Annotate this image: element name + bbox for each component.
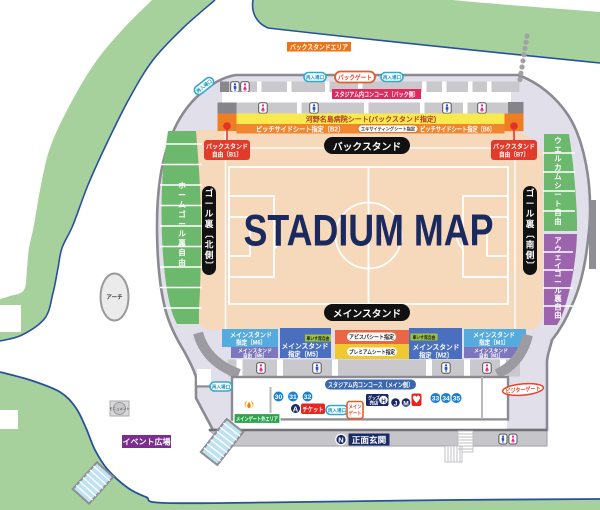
svg-text:ル: ル [526,209,535,219]
svg-text:ル: ル [554,154,562,163]
svg-text:〔: 〔 [525,230,535,239]
svg-text:32: 32 [304,394,312,401]
svg-text:指定〔M6〕: 指定〔M6〕 [236,338,266,347]
svg-text:再入場口: 再入場口 [212,383,231,390]
svg-text:M: M [403,400,409,407]
svg-text:バックゲート: バックゲート [338,73,372,82]
svg-text:自由〔B1〕: 自由〔B1〕 [212,150,242,159]
svg-text:30: 30 [275,394,283,401]
svg-text:裏: 裏 [525,218,535,229]
svg-text:自由〔M1〕: 自由〔M1〕 [479,351,503,359]
svg-text:メインスタンド: メインスタンド [333,308,401,320]
svg-text:N: N [338,436,343,445]
svg-text:再入場口: 再入場口 [328,407,347,414]
svg-text:イベント広場: イベント広場 [123,437,171,447]
svg-text:〔: 〔 [204,230,214,239]
svg-text:アビスパシート指定: アビスパシート指定 [349,333,395,341]
svg-text:チケット: チケット [303,405,324,413]
svg-text:指定〔M5〕: 指定〔M5〕 [288,350,322,359]
svg-text:裏: 裏 [177,238,186,248]
svg-text:正面玄関: 正面玄関 [352,434,387,445]
svg-text:メインスタンド: メインスタンド [413,343,460,352]
svg-text:ゴ: ゴ [526,187,535,198]
svg-text:ル: ル [178,229,186,238]
svg-text:自: 自 [554,208,561,217]
svg-text:ー: ー [554,190,561,199]
svg-text:カ: カ [554,163,561,172]
svg-text:STADIUM MAP: STADIUM MAP [244,205,494,255]
svg-text:バックスタンドエリア: バックスタンドエリア [290,43,348,52]
svg-text:33: 33 [432,395,440,402]
svg-text:ム: ム [178,200,186,209]
svg-text:ー: ー [178,191,186,200]
svg-text:H: H [381,398,386,405]
svg-text:アーチ: アーチ [106,294,123,301]
svg-text:バックスタンド: バックスタンド [493,142,535,151]
svg-text:北: 北 [205,239,214,250]
svg-text:〕: 〕 [204,261,214,270]
svg-text:車いす席自由: 車いす席自由 [307,335,330,342]
svg-text:スタジアム内コンコース〔バック側〕: スタジアム内コンコース〔バック側〕 [335,90,419,99]
svg-text:ー: ー [205,198,214,208]
svg-text:再入場口: 再入場口 [383,74,402,81]
svg-text:メイン: メイン [349,404,363,411]
svg-text:指定〔M1〕: 指定〔M1〕 [479,338,509,347]
svg-text:車いす席自由: 車いす席自由 [413,334,436,341]
svg-text:側: 側 [204,249,214,260]
svg-text:J: J [394,400,398,407]
svg-text:ム: ム [554,172,562,181]
svg-text:35: 35 [453,395,461,402]
svg-text:ル: ル [205,209,214,219]
svg-text:河野名島病院シート(バックスタンド指定): 河野名島病院シート(バックスタンド指定) [306,115,436,124]
svg-text:ゴ: ゴ [178,209,186,219]
svg-text:由: 由 [554,311,561,320]
svg-text:ゴ: ゴ [205,187,214,198]
svg-text:スタジアム内コンコース〔メイン側〕: スタジアム内コンコース〔メイン側〕 [328,380,413,389]
svg-text:側: 側 [525,249,535,260]
svg-text:ピッチサイドシート指定〔B6〕: ピッチサイドシート指定〔B6〕 [420,125,495,134]
svg-text:自: 自 [178,247,186,257]
svg-text:モニュメント: モニュメント [109,407,129,411]
svg-text:ト: ト [554,199,561,208]
svg-text:エキサイティングシート指定: エキサイティングシート指定 [361,126,415,133]
svg-text:シ: シ [554,181,561,190]
svg-text:プレミアムシート指定: プレミアムシート指定 [349,348,396,356]
svg-text:ゲート: ゲート [349,409,362,417]
svg-text:バックスタンド: バックスタンド [206,142,248,151]
svg-text:メインスタンド: メインスタンド [282,342,329,351]
svg-text:エ: エ [554,145,561,154]
svg-text:由: 由 [178,257,186,267]
svg-text:メインスタンド: メインスタンド [473,330,515,339]
svg-text:自由〔B7〕: 自由〔B7〕 [499,150,529,159]
svg-text:ウ: ウ [554,136,561,145]
svg-text:ホ: ホ [178,181,186,190]
svg-text:メインスタンド: メインスタンド [230,330,272,339]
svg-text:再入場口: 再入場口 [306,74,325,81]
svg-text:ピッチサイドシート指定〔B2〕: ピッチサイドシート指定〔B2〕 [256,125,344,134]
svg-text:自由〔M6〕: 自由〔M6〕 [243,351,267,359]
svg-text:由: 由 [554,217,561,226]
svg-text:裏: 裏 [204,218,214,229]
svg-text:34: 34 [442,395,450,402]
svg-text:メインゲート外エリア: メインゲート外エリア [236,415,278,423]
svg-text:ー: ー [526,198,535,208]
svg-text:A: A [293,404,299,413]
svg-text:バックスタンド: バックスタンド [333,141,401,153]
svg-text:南: 南 [526,239,535,250]
svg-text:〕: 〕 [525,261,535,270]
svg-text:ー: ー [178,219,186,228]
svg-text:指定〔M2〕: 指定〔M2〕 [419,351,453,360]
svg-text:売店: 売店 [369,400,379,407]
svg-text:31: 31 [289,394,297,401]
